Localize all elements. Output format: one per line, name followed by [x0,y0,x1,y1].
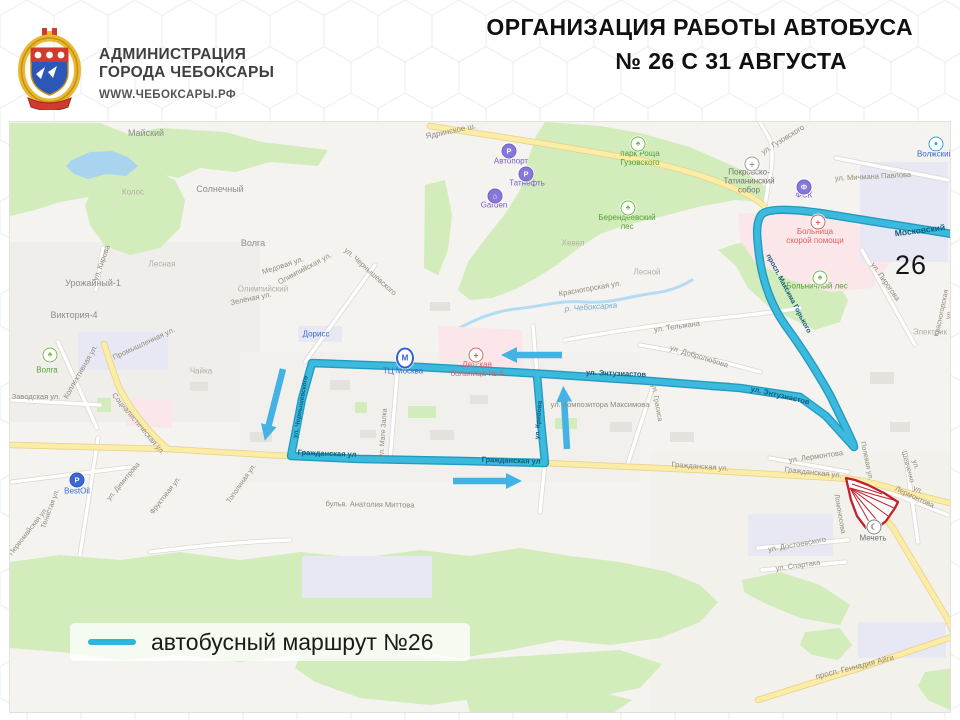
admin-line1: АДМИНИСТРАЦИЯ [99,46,274,64]
map-label: Мечеть [859,535,886,544]
map-label: парк Роща Гузовского [620,150,659,168]
map-label: Урожайный-1 [65,278,121,288]
park-icon: ♣ [631,137,646,152]
map-label: ул. Чернышевского [292,375,310,438]
admin-line2: ГОРОДА ЧЕБОКСАРЫ [99,64,274,82]
map-label: просп. Геннадия Айги [815,654,895,682]
route-map: МайскийСолнечныйКолосВолгаЛеснаяУрожайны… [10,122,950,712]
map-label: ул. Кривова [534,400,544,439]
map-label: Покровско- Татианинский собор [723,169,774,196]
map-label: Чайка [190,368,212,377]
map-label: Ядринское ш. [425,122,477,141]
map-label: Колос [122,189,144,198]
map-label: Полевая ул. [858,441,874,481]
map-label: Фруктовая ул. [149,476,183,517]
hotel-icon: ⌂ [488,189,503,204]
map-label: Первомайская ул. [10,506,50,557]
map-label: ул. Кирова [92,244,113,282]
map-label: Волга [36,367,57,376]
map-label: Гражданская ул [481,456,540,466]
map-label: ул. Энтузиастов [586,369,647,379]
legend: автобусный маршрут №26 [70,623,470,661]
map-label: Гражданская ул. [784,466,842,480]
map-label: Автопорт [494,158,528,167]
parking-icon: P [502,144,517,159]
hospital-icon: + [469,348,484,363]
map-label: ул. Чернышевского [342,246,397,297]
map-label: Красногорская ул. [558,279,622,298]
map-label: ул. Шевченко [898,445,923,487]
map-label: просп. Максима Горького [764,253,812,335]
map-label: Зелёная ул. [230,291,272,308]
map-label: Детская больница № 4 [450,361,503,379]
map-label: ул. Спартака [775,559,821,574]
map-label: ул. Пирогова [869,261,902,303]
map-label: Берендеевский лес [598,214,655,232]
map-label: Тополиная ул. [226,463,259,505]
map-label: ул. Энтузиастов [750,385,811,407]
legend-label: автобусный маршрут №26 [151,629,434,656]
map-label: Гражданская ул. [671,461,729,473]
map-label: ул. Мате Залка [378,408,389,458]
map-label: Электрик [913,329,947,338]
park-icon: ♣ [813,271,828,286]
map-label: ул. Добролюбова [669,344,729,370]
map-label: 26 [895,250,927,280]
park-icon: ♣ [43,348,58,363]
map-label: Лесная [149,261,176,270]
map-label: ул. Тельмана [654,320,701,335]
cheboksary-coat-of-arms [18,28,82,110]
header: АДМИНИСТРАЦИЯ ГОРОДА ЧЕБОКСАРЫ WWW.ЧЕБОК… [0,0,960,122]
fuel-icon: P [70,473,85,488]
map-label: Виктория-4 [50,310,97,320]
map-label: Больница скорой помощи [786,228,843,246]
sport-icon: Ф [797,180,812,195]
map-label: BestOil [64,488,90,497]
map-label: Коллективная ул. [62,344,100,401]
map-label: ул. Лермонтова [893,477,938,510]
map-label: Промышленная ул. [112,326,177,362]
mosque-icon: ☾ [867,520,882,535]
map-label: ул. Достоевского [767,536,826,554]
map-label: Волжский [917,151,950,160]
shop-icon: ● [929,137,944,152]
page-title-line1: ОРГАНИЗАЦИЯ РАБОТЫ АВТОБУСА [486,14,913,41]
admin-text-block: АДМИНИСТРАЦИЯ ГОРОДА ЧЕБОКСАРЫ WWW.ЧЕБОК… [99,46,274,101]
map-label: Гражданская ул [297,449,356,459]
park-icon: ♣ [621,201,636,216]
map-label: р. Чебоксарка [565,302,618,315]
map-label: ул. Мичмана Павлова [835,171,912,183]
map-label: Социалистическая ул. [110,391,166,456]
fuel-icon: P [519,167,534,182]
hospital-icon: + [811,215,826,230]
mall-icon: М [396,348,414,369]
admin-site-url: WWW.ЧЕБОКСАРЫ.РФ [99,89,274,101]
church-icon: + [745,157,760,172]
map-label: Дорисс [303,331,330,340]
map-label: Волга [241,238,265,248]
map-label: ул. Грасиса [649,384,663,422]
map-label: Красногорская ул. [933,289,950,339]
map-label: Тенистая ул. [40,488,61,529]
map-label: ул. Гузовского [760,123,806,156]
map-label: ул. Лермонтова [788,449,843,465]
map-label: Майский [128,128,164,138]
map-label: ТЦ Москва [383,368,423,377]
map-label: Ломоносова [832,494,847,535]
map-label: Заводская ул. [12,393,61,401]
map-label: ул. Композитора Максимова [551,401,650,409]
route-line-swatch [88,639,136,645]
map-label: Олимпийская ул. [277,251,333,286]
map-label: Солнечный [196,184,243,194]
map-label: Лесной [633,269,660,278]
map-label: ул. Димитрова [106,461,142,502]
map-label: Хевел [562,240,585,249]
map-label: Олимпийский [238,286,288,295]
map-label: бульв. Анатолия Миттова [326,500,415,510]
map-label: Медовая ул. [261,255,305,276]
page-title-line2: № 26 С 31 АВГУСТА [615,48,847,75]
map-label: Московский [894,223,945,239]
